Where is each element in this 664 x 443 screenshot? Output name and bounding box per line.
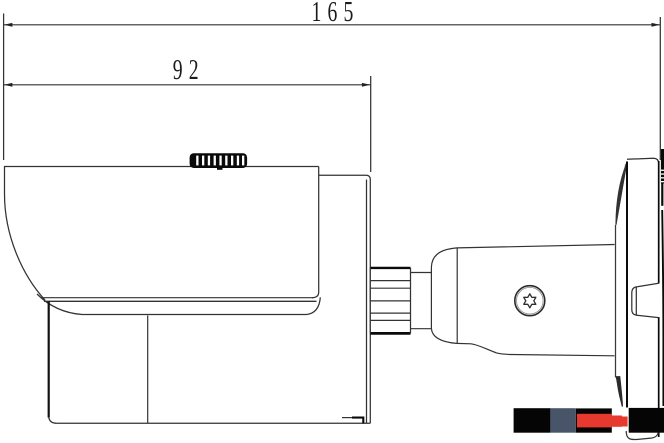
svg-text:165: 165 bbox=[312, 0, 360, 28]
svg-text:92: 92 bbox=[173, 55, 205, 87]
